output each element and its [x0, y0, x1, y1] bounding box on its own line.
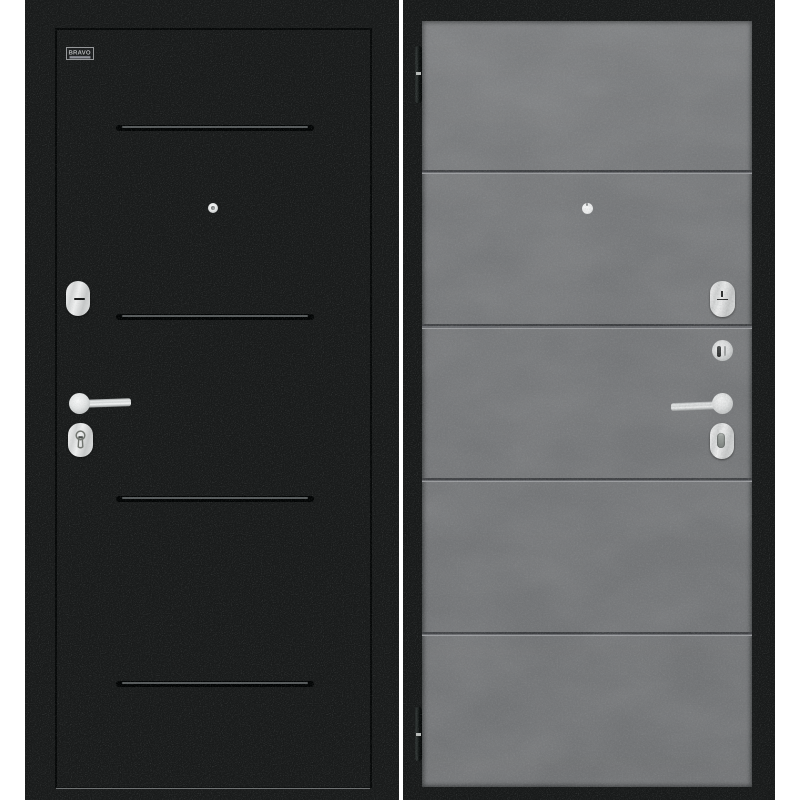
svg-text:BRAVO: BRAVO — [68, 49, 90, 56]
